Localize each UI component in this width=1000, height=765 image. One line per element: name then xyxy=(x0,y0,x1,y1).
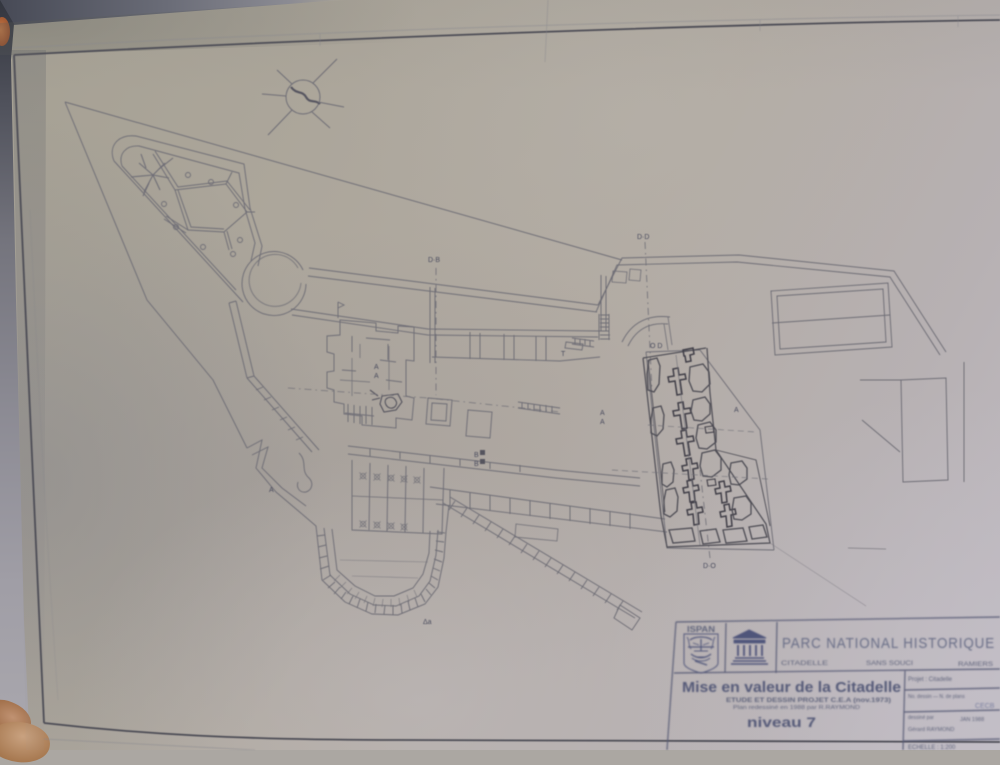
svg-text:A: A xyxy=(600,410,605,417)
svg-text:CECB: CECB xyxy=(975,703,995,710)
svg-text:Projet : Citadelle: Projet : Citadelle xyxy=(908,677,953,683)
svg-text:PARC NATIONAL HISTORIQUE: PARC NATIONAL HISTORIQUE xyxy=(782,635,995,652)
svg-text:O D: O D xyxy=(650,343,662,350)
svg-text:SANS SOUCI: SANS SOUCI xyxy=(866,660,913,667)
svg-text:dessiné par: dessiné par xyxy=(908,715,934,721)
svg-text:No. dessin — N. de plans: No. dessin — N. de plans xyxy=(908,694,965,700)
svg-text:Plan redessiné en 1988 par R.R: Plan redessiné en 1988 par R.RAYMOND xyxy=(733,705,860,711)
svg-text:A: A xyxy=(734,407,739,414)
svg-text:Δa: Δa xyxy=(423,619,432,626)
svg-text:ISPAN: ISPAN xyxy=(687,625,715,634)
svg-text:B: B xyxy=(474,461,479,468)
svg-text:RAMIERS: RAMIERS xyxy=(958,661,994,668)
svg-text:D·O: D·O xyxy=(703,563,716,570)
svg-text:A: A xyxy=(269,487,274,494)
svg-text:B: B xyxy=(474,452,479,459)
svg-text:A: A xyxy=(374,364,379,371)
svg-text:A: A xyxy=(600,419,605,426)
svg-text:CITADELLE: CITADELLE xyxy=(781,660,829,667)
svg-text:Mise en valeur de la Citadelle: Mise en valeur de la Citadelle xyxy=(682,679,901,696)
svg-text:A: A xyxy=(374,373,379,380)
svg-text:ETUDE ET DESSIN PROJET C.E.A (: ETUDE ET DESSIN PROJET C.E.A (nov.1973) xyxy=(726,697,891,704)
svg-text:D·D: D·D xyxy=(637,234,649,241)
svg-text:Gérard RAYMOND: Gérard RAYMOND xyxy=(908,727,954,733)
svg-text:niveau 7: niveau 7 xyxy=(747,715,816,730)
svg-text:T: T xyxy=(561,351,566,358)
svg-text:D·B: D·B xyxy=(428,257,440,264)
svg-text:ECHELLE : 1:200: ECHELLE : 1:200 xyxy=(908,745,956,750)
svg-text:JAN 1988: JAN 1988 xyxy=(960,717,984,723)
